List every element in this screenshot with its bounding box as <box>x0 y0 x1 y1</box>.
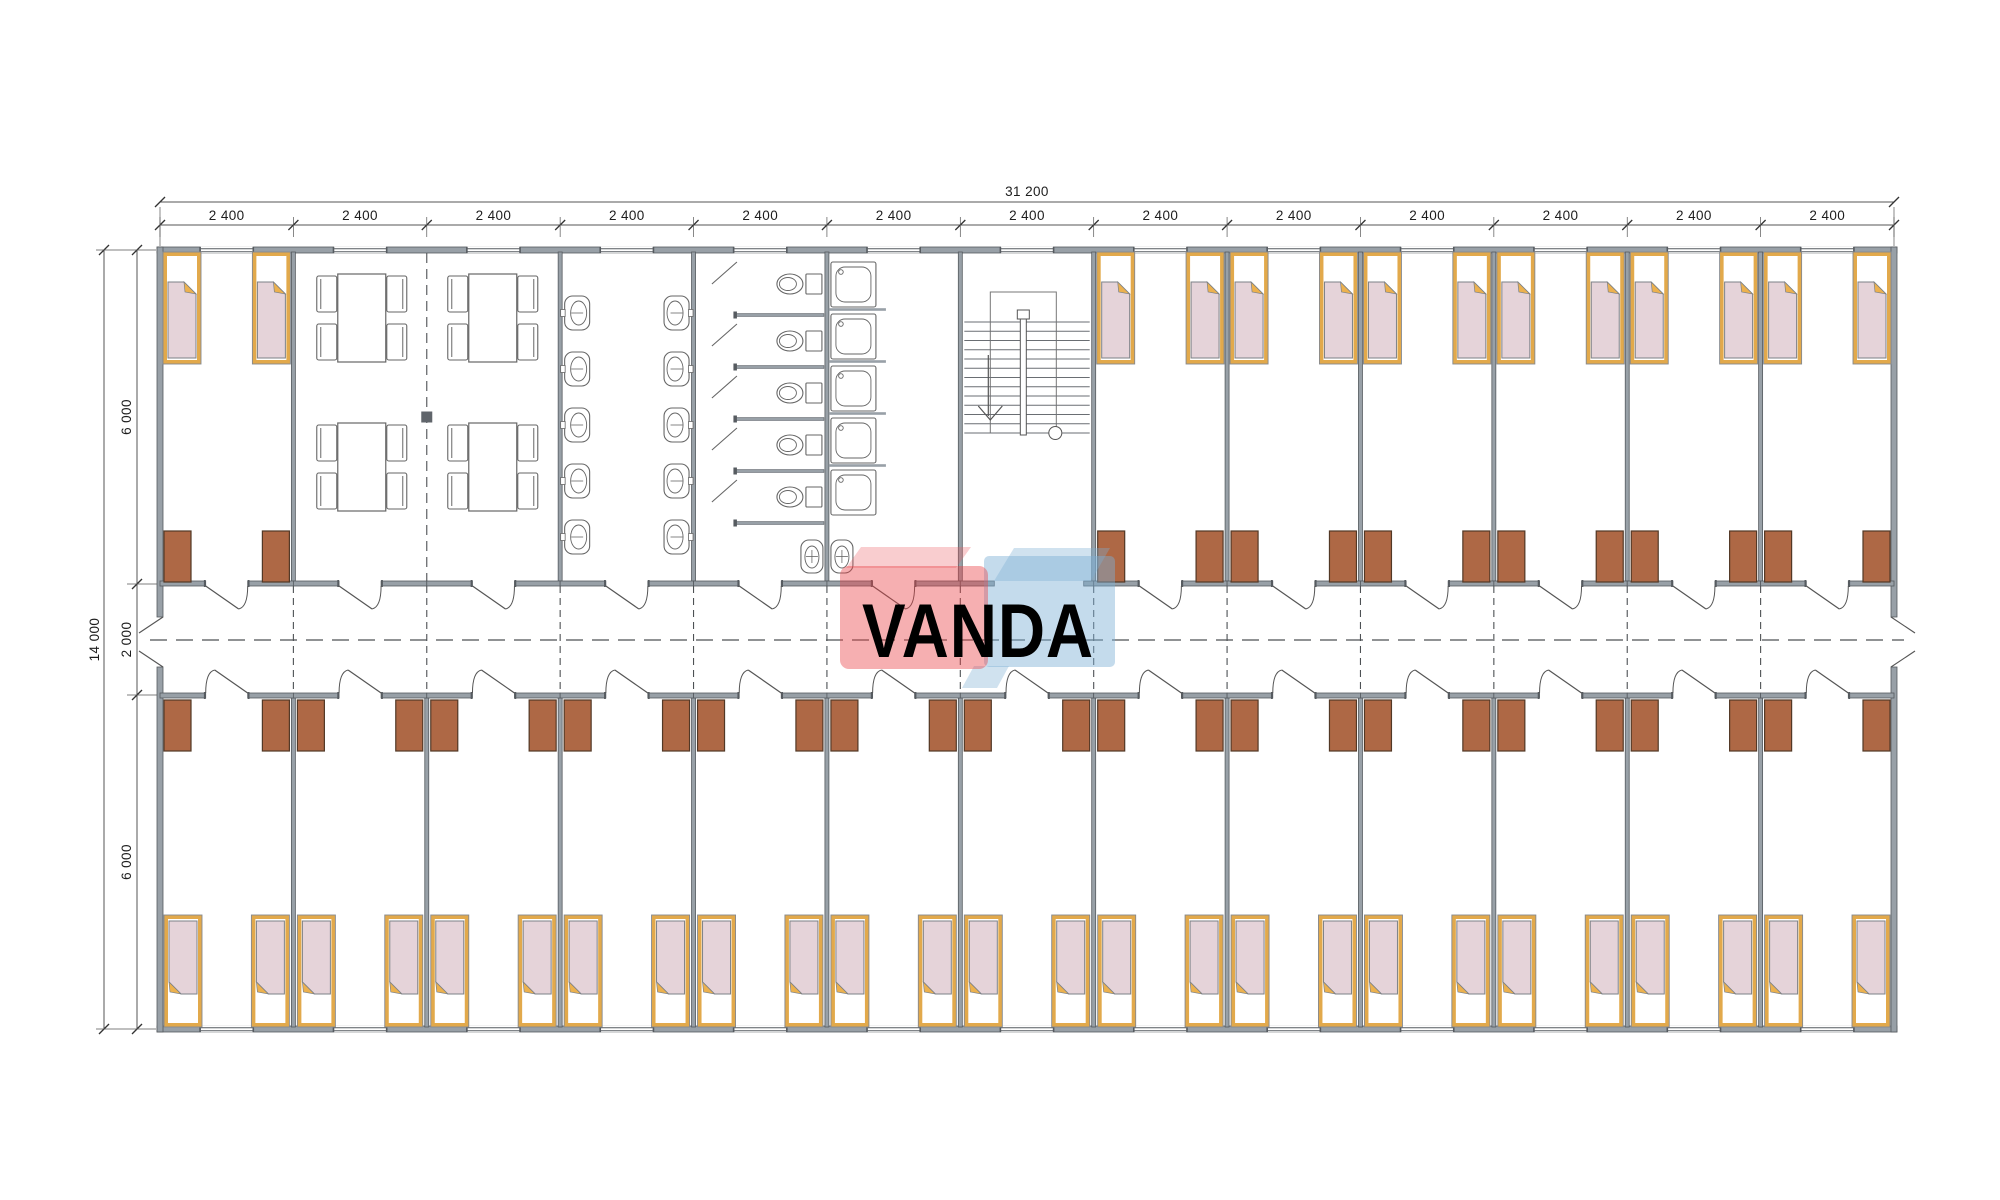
bed <box>1364 915 1402 1027</box>
mattress <box>1724 921 1752 994</box>
shower-tray <box>831 314 876 359</box>
basin-tap <box>689 310 694 317</box>
shower-tray <box>831 418 876 463</box>
wall-cap <box>1271 692 1273 699</box>
stall-door-leaf <box>712 324 737 346</box>
bed <box>1231 915 1269 1027</box>
wall-cap <box>1315 692 1317 699</box>
corridor-wall <box>960 693 1006 698</box>
staircase <box>964 292 1089 440</box>
bed <box>831 915 869 1027</box>
toilet-tank <box>806 274 822 294</box>
door-leaf <box>1282 670 1315 693</box>
outer-wall-right <box>1891 247 1897 617</box>
bed <box>652 915 690 1027</box>
wardrobe <box>1730 531 1757 582</box>
dim-label: 6 000 <box>119 844 134 880</box>
door-leaf <box>339 586 372 609</box>
door-leaf <box>1815 670 1848 693</box>
chair <box>317 425 337 461</box>
wall-cap <box>648 580 650 587</box>
mattress <box>1190 921 1218 994</box>
corridor-wall <box>427 693 473 698</box>
wall-cap <box>1805 580 1807 587</box>
wardrobe <box>831 700 858 751</box>
dim-label: 2 400 <box>342 208 378 223</box>
wall-cap <box>1582 692 1584 699</box>
dim-label: 14 000 <box>87 618 102 662</box>
chair <box>387 276 407 312</box>
door-leaf <box>1540 586 1573 609</box>
logo-red-top-face <box>846 547 971 568</box>
chair <box>448 324 468 360</box>
chair <box>518 473 538 509</box>
window-cap <box>519 247 521 253</box>
door-leaf <box>1682 670 1715 693</box>
wardrobe <box>564 700 591 751</box>
mattress <box>1236 921 1264 994</box>
dim-label: 2 400 <box>1543 208 1579 223</box>
door-swing-arc <box>239 586 248 609</box>
bed <box>698 915 736 1027</box>
room-divider-wall <box>1092 252 1096 581</box>
door-leaf <box>1139 586 1172 609</box>
stair-stringer-cap <box>1017 310 1029 319</box>
exit-door-leaf <box>1891 617 1915 633</box>
room-divider-wall <box>1492 698 1496 1027</box>
mattress <box>256 921 284 994</box>
wash-basin <box>561 296 590 330</box>
toilet-tank <box>806 435 822 455</box>
mattress <box>169 921 197 994</box>
corridor-wall <box>1360 693 1406 698</box>
wall-cap <box>604 580 606 587</box>
dining-table <box>338 423 386 511</box>
bed <box>1318 915 1356 1027</box>
wall-cap <box>1138 580 1140 587</box>
door-leaf <box>1406 586 1439 609</box>
door-swing-arc <box>1806 670 1815 693</box>
room-divider-wall <box>825 252 829 581</box>
outer-wall-right <box>1891 667 1897 1032</box>
wall-cap <box>1315 580 1317 587</box>
toilet-bowl <box>777 383 803 403</box>
wardrobe <box>396 700 423 751</box>
room-divider-wall <box>1092 698 1096 1027</box>
bed <box>252 252 290 364</box>
chair <box>387 473 407 509</box>
bed <box>1719 915 1757 1027</box>
bed <box>385 915 423 1027</box>
mattress <box>1057 921 1085 994</box>
wardrobe <box>1098 700 1125 751</box>
wall-cap <box>248 692 250 699</box>
mattress <box>1590 921 1618 994</box>
toilet-tank <box>806 331 822 351</box>
wall-cap <box>781 580 783 587</box>
wall-cap <box>1181 692 1183 699</box>
dim-label: 2 000 <box>119 622 134 658</box>
door-leaf <box>1148 670 1181 693</box>
chair <box>317 324 337 360</box>
shower-partition <box>829 412 886 415</box>
door-swing-arc <box>339 670 348 693</box>
chair <box>317 473 337 509</box>
corridor-wall <box>1227 693 1273 698</box>
bed <box>1230 252 1268 364</box>
door-leaf <box>615 670 648 693</box>
wall-cap <box>514 692 516 699</box>
chair <box>317 276 337 312</box>
wall-cap <box>1848 580 1850 587</box>
chair <box>448 425 468 461</box>
corridor-wall <box>560 693 606 698</box>
corridor-wall <box>160 693 206 698</box>
corridor-wall <box>381 693 427 698</box>
dim-label: 2 400 <box>609 208 645 223</box>
stall-post <box>733 468 737 475</box>
mattress <box>1770 921 1798 994</box>
wash-basin <box>664 520 693 554</box>
wardrobe <box>698 700 725 751</box>
room-divider-wall <box>1358 698 1362 1027</box>
door-swing-arc <box>1706 586 1715 609</box>
shower-partition <box>829 308 886 311</box>
window-cap <box>386 247 388 253</box>
toilet-tank <box>806 383 822 403</box>
wardrobe <box>1498 531 1525 582</box>
wardrobe <box>1463 531 1490 582</box>
window-cap <box>333 247 335 253</box>
wardrobe <box>1765 531 1792 582</box>
bed <box>1764 252 1802 364</box>
room-divider-wall <box>558 252 562 581</box>
stall-post <box>733 520 737 527</box>
wall-cap <box>381 692 383 699</box>
door-leaf <box>215 670 248 693</box>
door-swing-arc <box>739 670 748 693</box>
wall-cap <box>1538 692 1540 699</box>
window-cap <box>1000 247 1002 253</box>
shower-partition <box>829 360 886 363</box>
mattress <box>836 921 864 994</box>
corridor-wall <box>781 581 827 586</box>
wall-cap <box>915 692 917 699</box>
window-cap <box>653 247 655 253</box>
corridor-wall <box>1048 693 1094 698</box>
bed <box>1098 915 1136 1027</box>
mattress <box>1857 921 1885 994</box>
corridor-wall <box>293 693 339 698</box>
corridor-wall <box>1494 693 1540 698</box>
door-swing-arc <box>372 586 381 609</box>
bed <box>1453 252 1491 364</box>
room-divider-wall <box>1358 252 1362 581</box>
wardrobe <box>964 700 991 751</box>
mattress <box>1103 921 1131 994</box>
wall-cap <box>248 580 250 587</box>
dining-table <box>469 423 517 511</box>
wardrobe <box>1863 531 1890 582</box>
wardrobe <box>431 700 458 751</box>
wall-cap <box>1582 580 1584 587</box>
dim-label: 2 400 <box>1276 208 1312 223</box>
corridor-wall <box>1094 693 1140 698</box>
dim-label: 2 400 <box>1009 208 1045 223</box>
wall-cap <box>1538 580 1540 587</box>
wardrobe <box>1329 531 1356 582</box>
toilet-bowl <box>777 487 803 507</box>
wardrobe <box>1196 531 1223 582</box>
door-swing-arc <box>206 670 215 693</box>
door-leaf <box>1549 670 1582 693</box>
page: { "logo": { "text": "VANDA", "red": "rgb… <box>0 0 2000 1200</box>
room-divider-wall <box>1625 252 1629 581</box>
stair-newel-circle <box>1049 427 1062 440</box>
stall-door-leaf <box>712 376 737 398</box>
wall-cap <box>1048 692 1050 699</box>
wall-cap <box>1448 580 1450 587</box>
room-divider-wall <box>1492 252 1496 581</box>
corridor-wall <box>915 693 961 698</box>
wall-cap <box>1004 692 1006 699</box>
stall-partition <box>736 418 824 421</box>
bed <box>1052 915 1090 1027</box>
door-leaf <box>1806 586 1839 609</box>
mattress <box>790 921 818 994</box>
room-divider-wall <box>425 698 429 1027</box>
bed <box>564 915 602 1027</box>
wall-cap <box>604 692 606 699</box>
wall-cap <box>1805 692 1807 699</box>
mattress <box>1323 921 1351 994</box>
stall-post <box>733 364 737 371</box>
outer-wall-left <box>157 247 163 617</box>
wall-cap <box>1671 580 1673 587</box>
dim-label: 2 400 <box>1142 208 1178 223</box>
mattress <box>302 921 330 994</box>
wall-cap <box>1271 580 1273 587</box>
door-leaf <box>606 586 639 609</box>
door-swing-arc <box>639 586 648 609</box>
wardrobe <box>1498 700 1525 751</box>
wall-cap <box>781 692 783 699</box>
wardrobe <box>1364 700 1391 751</box>
mattress <box>1636 921 1664 994</box>
wardrobe <box>164 700 191 751</box>
chair <box>448 473 468 509</box>
dim-label: 31 200 <box>1005 184 1049 199</box>
dim-label: 2 400 <box>1409 208 1445 223</box>
door-leaf <box>206 586 239 609</box>
corridor-wall <box>827 693 873 698</box>
door-leaf <box>739 586 772 609</box>
wall-cap <box>204 580 206 587</box>
bed <box>1363 252 1401 364</box>
room-divider-wall <box>1759 252 1763 581</box>
shower-tray <box>831 366 876 411</box>
dining-table <box>338 274 386 362</box>
door-leaf <box>1673 586 1706 609</box>
mattress <box>1369 921 1397 994</box>
basin-tap <box>561 534 566 541</box>
door-swing-arc <box>505 586 514 609</box>
basin-tap <box>561 478 566 485</box>
corridor-wall <box>1315 693 1361 698</box>
wardrobe <box>262 700 289 751</box>
exit-door-leaf <box>139 651 163 667</box>
corridor-wall <box>1627 693 1673 698</box>
door-swing-arc <box>472 670 481 693</box>
wardrobe <box>1063 700 1090 751</box>
window-cap <box>786 247 788 253</box>
wardrobe <box>1730 700 1757 751</box>
bed <box>1585 915 1623 1027</box>
dim-label: 2 400 <box>1676 208 1712 223</box>
toilet-bowl <box>777 274 803 294</box>
wardrobe <box>929 700 956 751</box>
shower-tray <box>831 262 876 307</box>
bed <box>1185 915 1223 1027</box>
corridor-wall <box>1181 693 1227 698</box>
corridor-wall <box>1715 693 1761 698</box>
room-divider-wall <box>291 252 295 581</box>
door-swing-arc <box>1439 586 1448 609</box>
door-swing-arc <box>1839 586 1848 609</box>
corridor-wall <box>427 581 473 586</box>
door-leaf <box>748 670 781 693</box>
door-leaf <box>472 586 505 609</box>
basin-tap <box>561 310 566 317</box>
dim-label: 2 400 <box>1809 208 1845 223</box>
wall-cap <box>1404 692 1406 699</box>
wall-cap <box>471 692 473 699</box>
mattress <box>569 921 597 994</box>
wardrobe <box>1631 531 1658 582</box>
wash-basin <box>664 464 693 498</box>
wardrobe <box>1364 531 1391 582</box>
mattress <box>969 921 997 994</box>
bed <box>1497 252 1535 364</box>
window-cap <box>599 247 601 253</box>
bed <box>918 915 956 1027</box>
dim-label: 6 000 <box>119 399 134 435</box>
bed <box>1720 252 1758 364</box>
door-swing-arc <box>1139 670 1148 693</box>
wardrobe <box>1231 531 1258 582</box>
dining-table <box>469 274 517 362</box>
stall-partition <box>736 522 824 525</box>
bed <box>1586 252 1624 364</box>
dim-label: 2 400 <box>476 208 512 223</box>
stall-partition <box>736 314 824 317</box>
stall-partition <box>736 366 824 369</box>
corridor-wall <box>1761 693 1807 698</box>
corridor-wall <box>648 581 694 586</box>
corridor-wall <box>648 693 694 698</box>
bed <box>1852 915 1890 1027</box>
dim-label: 2 400 <box>209 208 245 223</box>
room-divider-wall <box>291 698 295 1027</box>
basin-tap <box>689 422 694 429</box>
bed <box>1319 252 1357 364</box>
wall-cap <box>381 580 383 587</box>
wash-basin <box>561 520 590 554</box>
bed <box>164 915 202 1027</box>
mattress <box>390 921 418 994</box>
basin-tap <box>689 478 694 485</box>
dim-label: 2 400 <box>742 208 778 223</box>
wall-cap <box>1848 692 1850 699</box>
corridor-wall <box>514 581 560 586</box>
wardrobe <box>663 700 690 751</box>
window-cap <box>466 247 468 253</box>
wash-basin <box>561 408 590 442</box>
wall-cap <box>1448 692 1450 699</box>
chair <box>518 324 538 360</box>
corridor-wall <box>293 581 339 586</box>
window-cap <box>733 247 735 253</box>
door-leaf <box>1273 586 1306 609</box>
door-swing-arc <box>772 586 781 609</box>
window-cap <box>919 247 921 253</box>
bed <box>1097 252 1135 364</box>
brand-logo-text: VANDA <box>862 589 1094 674</box>
wardrobe <box>529 700 556 751</box>
bed <box>1631 915 1669 1027</box>
room-divider-wall <box>558 698 562 1027</box>
bed <box>163 252 201 364</box>
wardrobe <box>1463 700 1490 751</box>
exit-door-leaf <box>1891 651 1915 667</box>
stall-door-leaf <box>712 480 737 502</box>
wall-cap <box>204 692 206 699</box>
wall-cap <box>737 580 739 587</box>
bed <box>1765 915 1803 1027</box>
room-divider-wall <box>1225 252 1229 581</box>
room-divider-wall <box>692 252 696 581</box>
column-marker <box>421 412 432 423</box>
wardrobe <box>1596 531 1623 582</box>
stall-post <box>733 312 737 319</box>
stair-stringer <box>1020 318 1026 435</box>
wall-cap <box>1715 692 1717 699</box>
basin-tap <box>689 534 694 541</box>
wardrobe <box>262 531 289 582</box>
wardrobe <box>1631 700 1658 751</box>
corridor-wall <box>694 693 740 698</box>
door-swing-arc <box>606 670 615 693</box>
wall-cap <box>337 580 339 587</box>
bed <box>1452 915 1490 1027</box>
wardrobe <box>1231 700 1258 751</box>
wardrobe <box>1329 700 1356 751</box>
wall-cap <box>1138 692 1140 699</box>
room-divider-wall <box>958 698 962 1027</box>
room-divider-wall <box>825 698 829 1027</box>
room-divider-wall <box>1625 698 1629 1027</box>
wall-cap <box>471 580 473 587</box>
outer-wall-left <box>157 667 163 1032</box>
door-leaf <box>348 670 381 693</box>
wardrobe <box>164 531 191 582</box>
toilet-tank <box>806 487 822 507</box>
corridor-wall <box>1448 693 1494 698</box>
wardrobe <box>796 700 823 751</box>
window-cap <box>1053 247 1055 253</box>
stall-door-leaf <box>712 262 737 284</box>
bed <box>1186 252 1224 364</box>
